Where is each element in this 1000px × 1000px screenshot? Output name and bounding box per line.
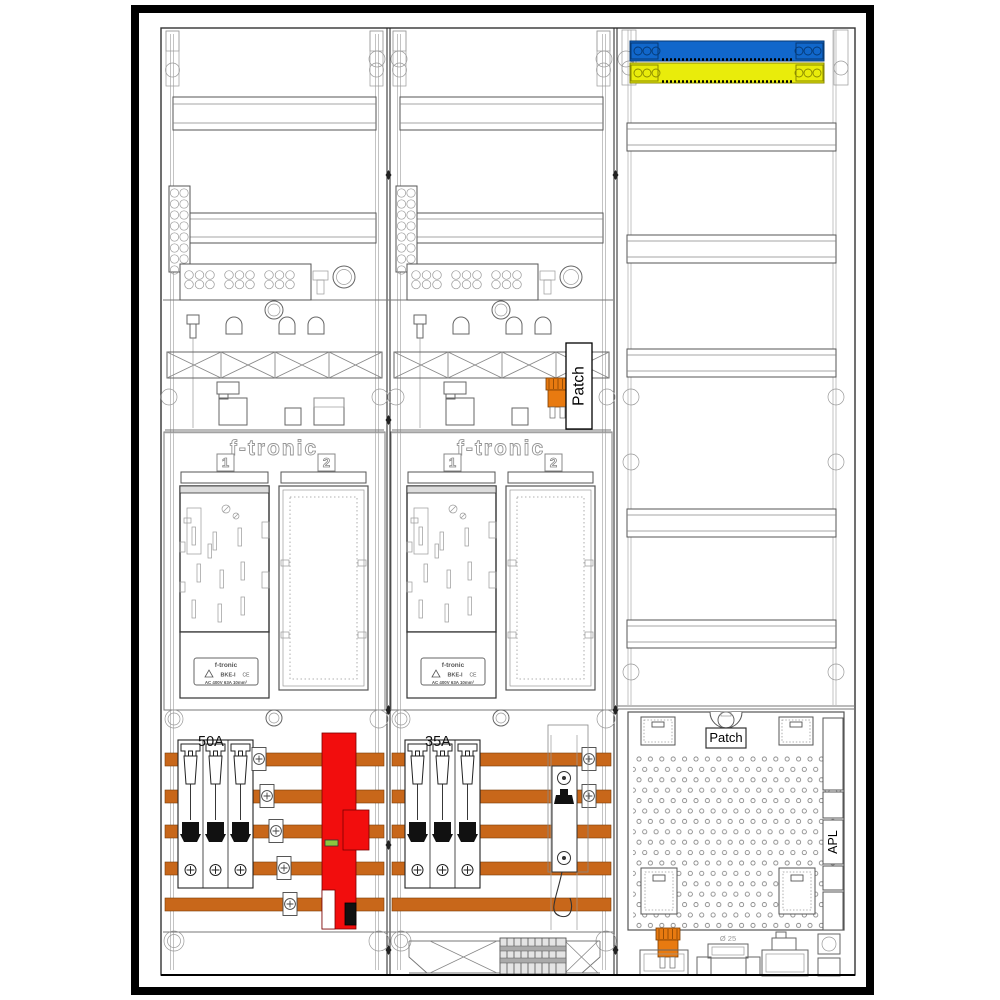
field-2-pos-2: 2 bbox=[550, 455, 557, 470]
neutral-busbar bbox=[630, 41, 824, 61]
field-2-brand-logo: f-tronic bbox=[457, 437, 545, 460]
patch-label-mid: Patch bbox=[566, 343, 592, 429]
field-1-pos-2: 2 bbox=[323, 455, 330, 470]
field-1-brand-logo: f-tronic bbox=[230, 437, 318, 460]
svg-text:CE: CE bbox=[470, 673, 478, 679]
patch-label-mid-text: Patch bbox=[571, 366, 588, 406]
field-1-pos-1: 1 bbox=[222, 455, 229, 470]
patch-panel: Patch bbox=[628, 712, 844, 930]
sls-indicator-window bbox=[325, 840, 338, 846]
patch-label-bottom-text: Patch bbox=[709, 730, 742, 745]
apl-label-text: APL bbox=[826, 830, 840, 854]
svg-text:BKE-I: BKE-I bbox=[448, 673, 463, 679]
meter-cabinet-diagram: Patch bbox=[0, 0, 1000, 1000]
field-2-pos-1: 1 bbox=[449, 455, 456, 470]
svg-text:BKE-I: BKE-I bbox=[221, 673, 236, 679]
svg-text:AC 400V 63A 10mm²: AC 400V 63A 10mm² bbox=[205, 680, 248, 685]
svg-text:AC 400V 63A 10mm²: AC 400V 63A 10mm² bbox=[432, 680, 475, 685]
terminal-comb bbox=[500, 938, 566, 974]
pe-busbar bbox=[630, 63, 824, 83]
svg-text:f-tronic: f-tronic bbox=[442, 662, 465, 669]
grommet-diameter-label: Ø 25 bbox=[720, 934, 736, 943]
screenshot-root: Patch bbox=[0, 0, 1000, 1000]
apl-strip: APL bbox=[823, 718, 843, 930]
svg-text:f-tronic: f-tronic bbox=[215, 662, 238, 669]
field-1-fuse-rating: 50A bbox=[198, 734, 224, 750]
field-2-fuse-rating: 35A bbox=[425, 734, 451, 750]
svg-text:CE: CE bbox=[243, 673, 251, 679]
